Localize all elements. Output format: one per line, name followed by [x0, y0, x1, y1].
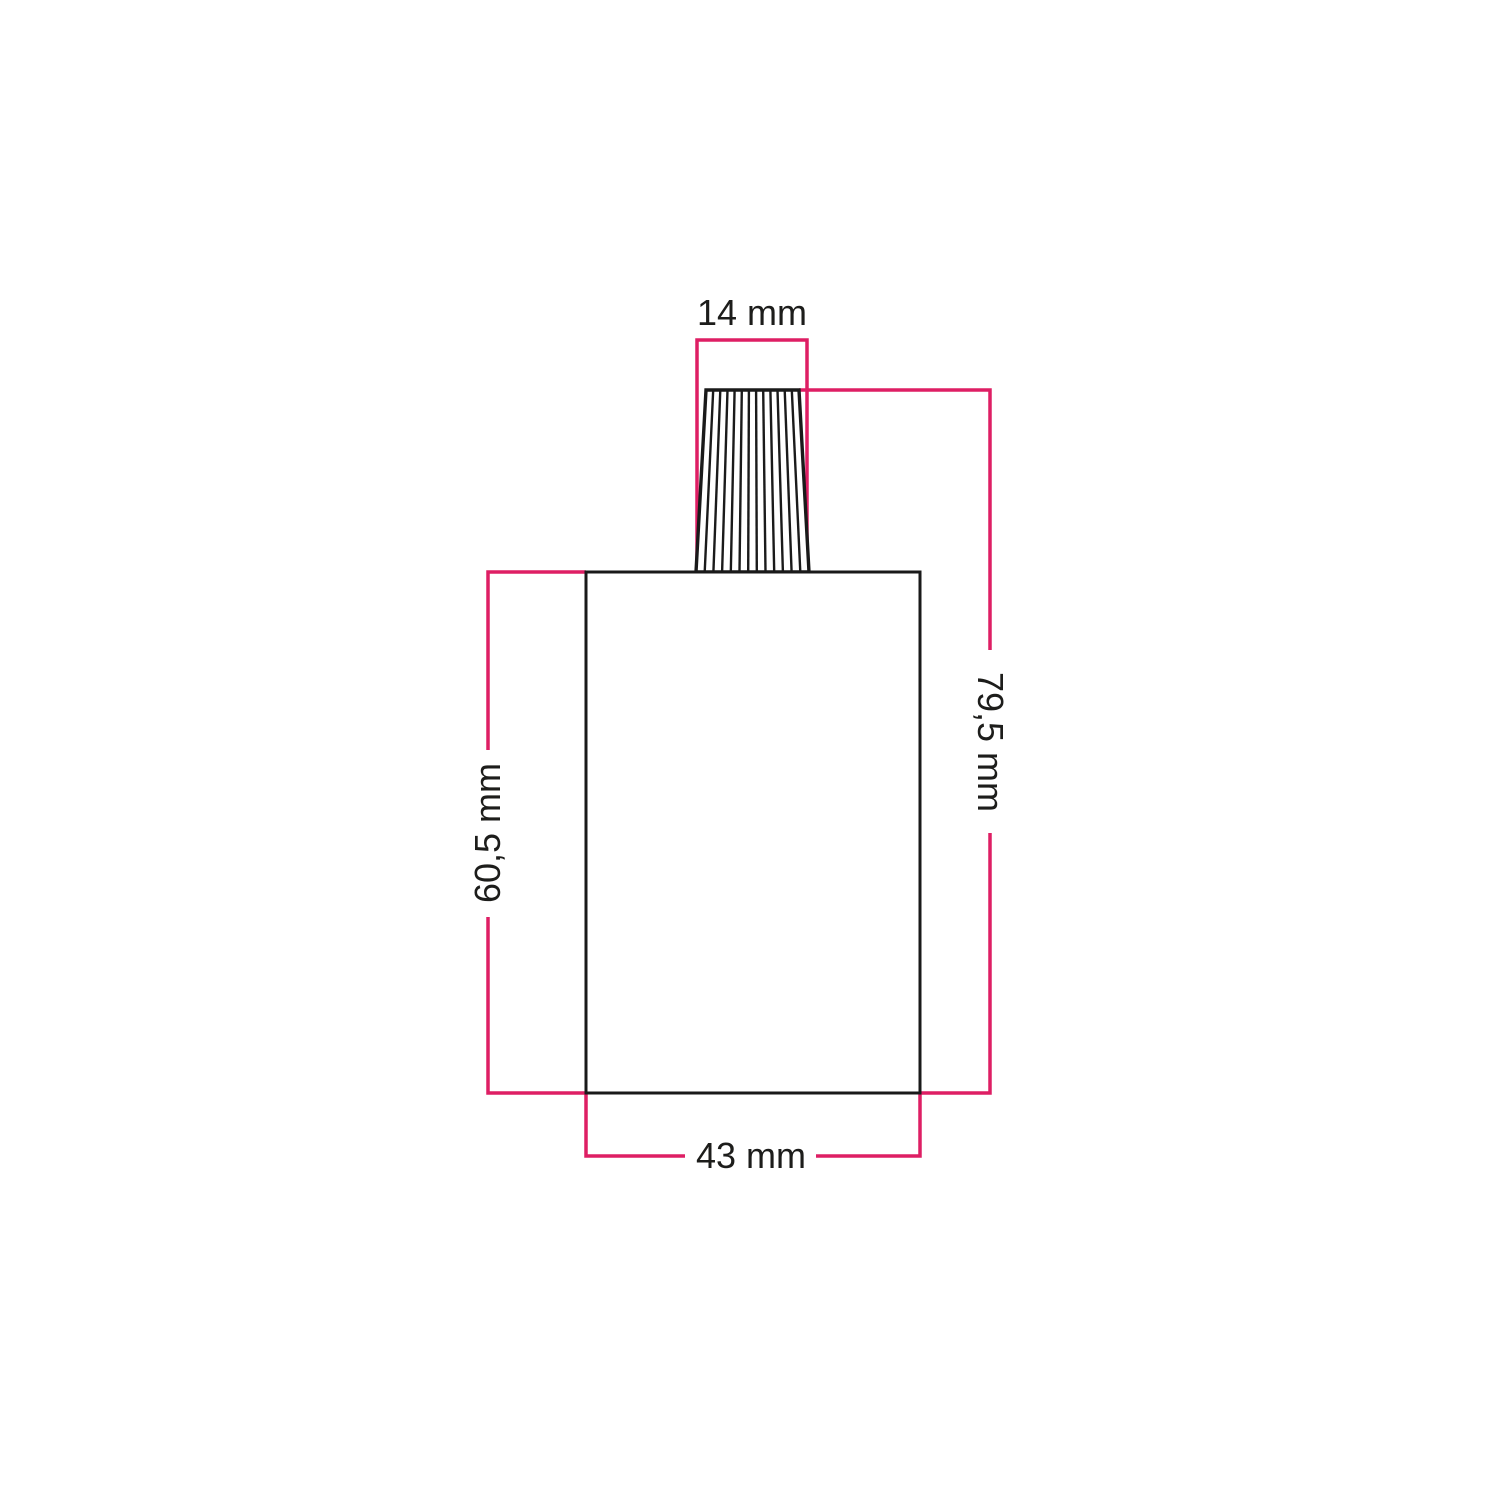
socket-body: [586, 572, 920, 1093]
dim-label-body-height: 60,5 mm: [468, 683, 508, 983]
cable-gland-cone: [696, 390, 809, 572]
dimension-drawing: [0, 0, 1500, 1500]
dim-label-body-width: 43 mm: [601, 1136, 901, 1176]
dimension-drawing-canvas: 14 mm 79,5 mm 60,5 mm 43 mm: [0, 0, 1500, 1500]
dim-label-total-height: 79,5 mm: [970, 592, 1010, 892]
dim-label-top-width: 14 mm: [602, 293, 902, 333]
